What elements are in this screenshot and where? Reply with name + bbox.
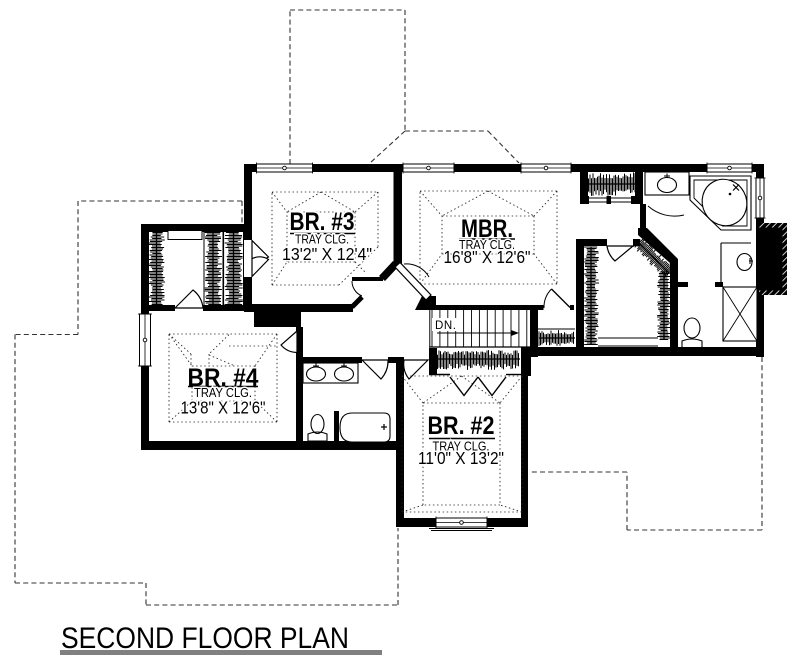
svg-text:11'0" X 13'2": 11'0" X 13'2" [418,448,504,468]
svg-text:BR. #2: BR. #2 [428,412,495,440]
svg-text:13'2" X 12'4": 13'2" X 12'4" [282,244,372,264]
svg-text:13'8" X 12'6": 13'8" X 12'6" [181,398,266,418]
svg-text:DN.: DN. [435,320,456,332]
svg-text:16'8" X 12'6": 16'8" X 12'6" [444,247,531,267]
